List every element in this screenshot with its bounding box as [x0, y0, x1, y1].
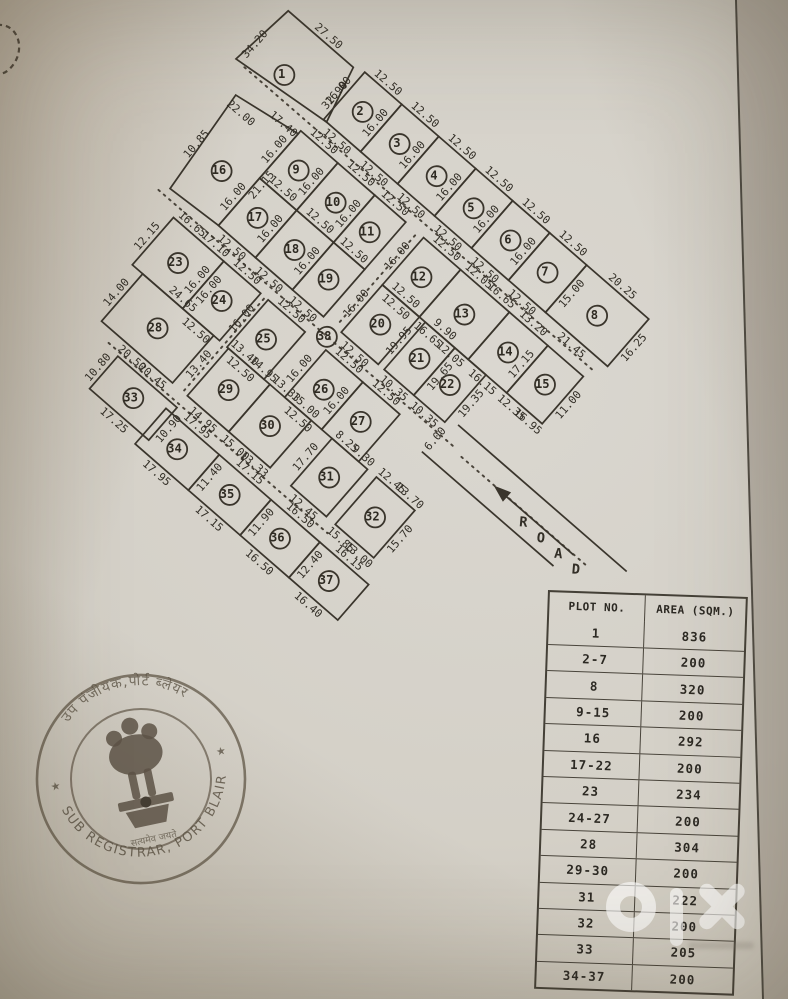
col-header-plot-no: PLOT NO. [549, 592, 646, 621]
plot-number-25: 25 [256, 332, 271, 346]
plot-number-9: 9 [292, 163, 299, 177]
scanned-site-plan-photo: ROAD6.00127.5034.2032.90212.5016.0012.50… [0, 0, 788, 999]
area-cell: 234 [639, 780, 740, 809]
area-cell: 304 [637, 833, 738, 862]
col-header-area: AREA (SQM.) [645, 595, 746, 624]
plot-no-cell: 16 [544, 724, 641, 753]
road-width-label: 6.00 [422, 425, 449, 453]
plot-number-12: 12 [411, 269, 426, 283]
plot-number-20: 20 [370, 317, 385, 331]
pen-squiggle-mark [0, 25, 19, 74]
plot-number-5: 5 [467, 200, 474, 214]
plot-number-11: 11 [360, 224, 375, 238]
seal-star-right: ★ [215, 744, 227, 759]
plot-number-21: 21 [410, 351, 425, 365]
plot-number-8: 8 [591, 308, 598, 322]
dimension-label: 34.20 [239, 27, 270, 60]
plot-no-cell: 2-7 [547, 645, 644, 674]
dimension-label: 10.85 [181, 127, 212, 160]
area-cell: 200 [639, 754, 740, 783]
area-cell: 836 [644, 621, 745, 650]
plot-no-cell: 9-15 [545, 698, 642, 727]
olx-o-glyph [606, 882, 656, 932]
plot-no-cell: 17-22 [544, 751, 641, 780]
plot-no-cell: 8 [546, 671, 643, 700]
plot-number-32: 32 [365, 510, 380, 524]
plot-number-16: 16 [212, 163, 227, 177]
plot-number-36: 36 [270, 531, 285, 545]
plot-number-22: 22 [440, 377, 455, 391]
plot-number-15: 15 [535, 377, 550, 391]
plot-number-30: 30 [260, 418, 275, 432]
plot-number-29: 29 [219, 382, 234, 396]
plot-number-7: 7 [541, 265, 548, 279]
plot-number-2: 2 [356, 104, 363, 118]
plot-number-38: 38 [317, 329, 332, 343]
ashoka-emblem [101, 712, 179, 831]
area-cell: 200 [638, 807, 739, 836]
plot-number-10: 10 [326, 195, 341, 209]
plot-number-28: 28 [148, 320, 163, 334]
plot-no-cell: 23 [543, 777, 640, 806]
plot-number-35: 35 [220, 487, 235, 501]
dimension-label: 22.00 [224, 97, 257, 128]
plot-number-37: 37 [319, 573, 334, 587]
photo-edge-shade [737, 0, 788, 999]
sub-registrar-seal: उप पंजीयक,पोर्ट ब्लेयर SUB REGISTRAR, PO… [9, 647, 272, 910]
plot-number-18: 18 [285, 242, 300, 256]
plot-number-17: 17 [248, 210, 263, 224]
plot-number-24: 24 [212, 293, 227, 307]
plot-number-23: 23 [168, 255, 183, 269]
road-label-letter: D [571, 561, 581, 578]
olx-watermark [604, 862, 756, 958]
plot-number-27: 27 [351, 414, 366, 428]
plot-number-33: 33 [123, 390, 138, 404]
watermark-smudge [688, 942, 754, 949]
plot-number-6: 6 [504, 233, 511, 247]
area-cell: 292 [640, 728, 741, 757]
plot-no-cell: 24-27 [542, 803, 639, 832]
plot-number-14: 14 [498, 345, 513, 359]
area-cell: 200 [641, 701, 742, 730]
plot-number-1: 1 [278, 67, 285, 81]
plot-no-cell: 28 [541, 830, 638, 859]
road-edge-line [422, 452, 554, 566]
plot-number-31: 31 [319, 470, 334, 484]
road-label-letter: O [536, 530, 546, 547]
plot-number-26: 26 [314, 382, 329, 396]
area-cell: 200 [643, 648, 744, 677]
plot-number-13: 13 [454, 307, 469, 321]
road-label-letter: A [553, 546, 563, 563]
olx-l-glyph [670, 888, 683, 946]
plot-no-cell: 1 [548, 618, 645, 647]
seal-star-left: ★ [49, 779, 61, 794]
plot-number-3: 3 [393, 136, 400, 150]
plot-number-4: 4 [430, 168, 437, 182]
area-cell: 320 [642, 675, 743, 704]
plot-boundary-1 [236, 6, 365, 131]
road-label-letter: R [518, 514, 528, 531]
road-edge-line [458, 425, 627, 572]
plot-number-19: 19 [319, 272, 334, 286]
plot-number-34: 34 [167, 441, 182, 455]
plot-no-cell: 34-37 [536, 962, 633, 991]
area-cell: 200 [632, 965, 733, 994]
